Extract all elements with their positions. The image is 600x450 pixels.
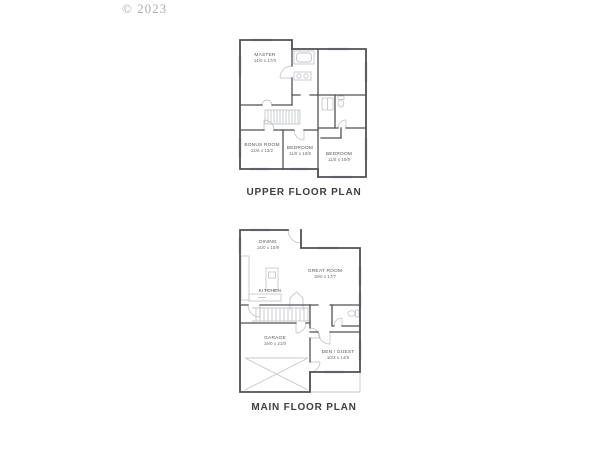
main-floor-plan-drawing: DINING 14/0 x 10/9 GREAT ROOM 19/0 x 17/… — [238, 228, 370, 398]
room-dims-bedroom3: 11/0 x 10/9 — [328, 157, 351, 162]
room-dims-bedroom2: 11/0 x 10/9 — [289, 151, 312, 156]
room-dims-bonus: 12/6 x 13/2 — [251, 148, 274, 153]
floor-plan-image: © 2023 — [0, 0, 600, 450]
room-dims-great-room: 19/0 x 17/7 — [314, 274, 337, 279]
main-floor-caption: MAIN FLOOR PLAN — [224, 402, 384, 413]
main-room-labels: DINING 14/0 x 10/9 GREAT ROOM 19/0 x 17/… — [257, 239, 355, 360]
upper-fixtures — [265, 51, 344, 124]
room-dims-garage: 19/0 x 21/0 — [264, 341, 287, 346]
upper-floor-caption: UPPER FLOOR PLAN — [224, 187, 384, 198]
room-dims-den-guest: 10/3 x 14/5 — [327, 355, 350, 360]
room-label-kitchen: KITCHEN — [259, 288, 282, 294]
room-dims-master: 14/0 x 17/0 — [254, 58, 277, 63]
upper-floor-plan-drawing: MASTER 14/0 x 17/0 BONUS ROOM 12/6 x 13/… — [238, 38, 370, 188]
upper-room-labels: MASTER 14/0 x 17/0 BONUS ROOM 12/6 x 13/… — [244, 52, 352, 162]
room-dims-dining: 14/0 x 10/9 — [257, 245, 280, 250]
copyright-watermark: © 2023 — [122, 1, 167, 17]
